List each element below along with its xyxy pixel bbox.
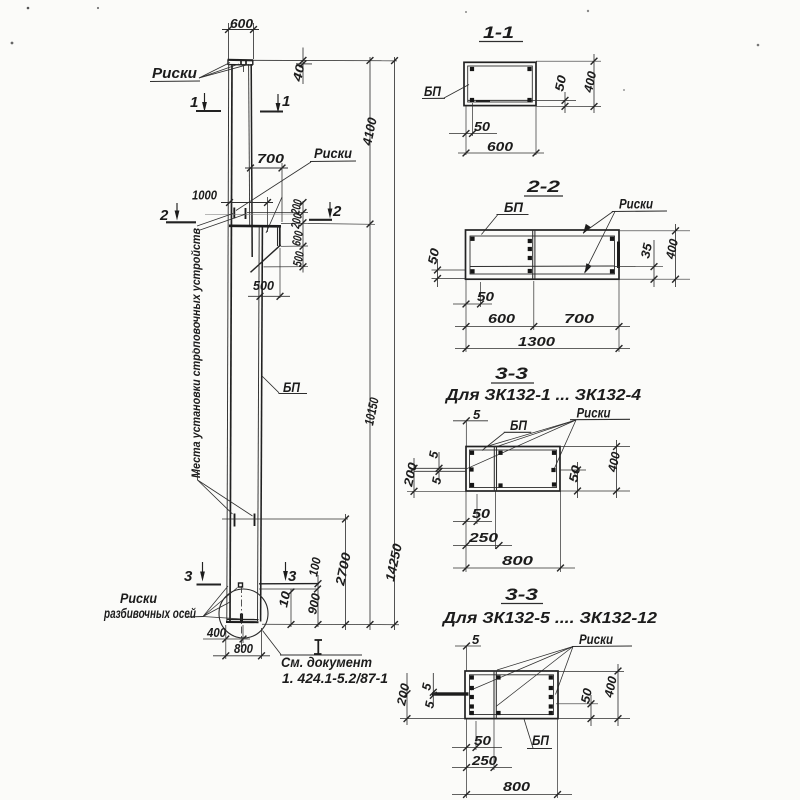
svg-text:600: 600 <box>487 139 514 154</box>
svg-text:1300: 1300 <box>518 334 556 349</box>
svg-text:разбивочных осей: разбивочных осей <box>103 606 196 621</box>
svg-text:Места установки строповочных у: Места установки строповочных устройств <box>189 227 203 478</box>
svg-text:Риски: Риски <box>314 145 352 161</box>
svg-text:2-2: 2-2 <box>526 177 561 196</box>
svg-text:50: 50 <box>425 247 442 266</box>
svg-text:50: 50 <box>474 119 491 134</box>
svg-text:5: 5 <box>422 699 437 710</box>
svg-text:1: 1 <box>282 93 290 110</box>
svg-text:200: 200 <box>394 682 412 708</box>
svg-text:3-3: 3-3 <box>495 364 529 383</box>
svg-text:400: 400 <box>602 675 620 699</box>
svg-text:250: 250 <box>468 530 499 545</box>
svg-text:5: 5 <box>473 407 481 422</box>
svg-text:35: 35 <box>638 241 655 260</box>
svg-text:800: 800 <box>502 553 534 568</box>
svg-text:10150: 10150 <box>361 396 382 427</box>
svg-text:40: 40 <box>290 63 307 84</box>
svg-text:1. 424.1-5.2/87-1: 1. 424.1-5.2/87-1 <box>282 671 388 686</box>
svg-text:3-3: 3-3 <box>505 585 539 604</box>
svg-text:400: 400 <box>605 451 623 474</box>
svg-text:500: 500 <box>253 278 275 293</box>
svg-text:3: 3 <box>184 568 193 585</box>
svg-text:50: 50 <box>472 506 491 521</box>
svg-text:2: 2 <box>332 203 342 220</box>
svg-text:Риски: Риски <box>152 66 197 82</box>
svg-text:Риски: Риски <box>579 632 614 647</box>
svg-text:600: 600 <box>230 16 254 31</box>
svg-text:3: 3 <box>288 568 297 585</box>
svg-text:900: 900 <box>305 592 323 615</box>
svg-text:50: 50 <box>566 464 583 484</box>
svg-text:1-1: 1-1 <box>483 23 514 42</box>
svg-text:Риски: Риски <box>577 406 612 421</box>
svg-text:800: 800 <box>503 779 531 794</box>
svg-text:Риски: Риски <box>120 591 158 606</box>
svg-text:200: 200 <box>401 461 420 489</box>
svg-text:См. документ: См. документ <box>281 655 372 670</box>
svg-text:50: 50 <box>477 289 495 304</box>
svg-text:400: 400 <box>206 625 227 640</box>
svg-text:БП: БП <box>510 417 528 433</box>
svg-text:4100: 4100 <box>359 115 380 147</box>
svg-text:50: 50 <box>474 733 492 748</box>
svg-text:5: 5 <box>419 681 434 692</box>
svg-text:600: 600 <box>289 230 306 248</box>
svg-text:50: 50 <box>552 74 569 93</box>
svg-text:700: 700 <box>257 151 285 166</box>
svg-text:14250: 14250 <box>382 542 405 583</box>
svg-text:Для ЗК132-5 .... ЗК132-12: Для ЗК132-5 .... ЗК132-12 <box>441 610 658 627</box>
svg-text:Риски: Риски <box>619 197 654 212</box>
svg-text:1: 1 <box>190 94 198 111</box>
svg-text:БП: БП <box>504 199 524 215</box>
svg-text:800: 800 <box>234 641 254 656</box>
svg-text:100: 100 <box>306 556 324 578</box>
svg-text:БП: БП <box>283 379 301 395</box>
svg-text:Для ЗК132-1 ... ЗК132-4: Для ЗК132-1 ... ЗК132-4 <box>444 387 642 404</box>
svg-text:250: 250 <box>471 753 498 768</box>
svg-text:1000: 1000 <box>192 188 218 203</box>
svg-text:БП: БП <box>532 732 550 748</box>
svg-text:БП: БП <box>424 83 442 99</box>
svg-text:5: 5 <box>429 475 444 486</box>
svg-text:400: 400 <box>581 70 599 94</box>
svg-text:600: 600 <box>488 311 516 326</box>
svg-text:200: 200 <box>288 212 305 230</box>
svg-text:400: 400 <box>663 238 681 261</box>
svg-text:5: 5 <box>426 449 441 460</box>
svg-text:5: 5 <box>472 632 480 647</box>
svg-text:2700: 2700 <box>332 550 354 587</box>
svg-text:700: 700 <box>564 311 595 326</box>
